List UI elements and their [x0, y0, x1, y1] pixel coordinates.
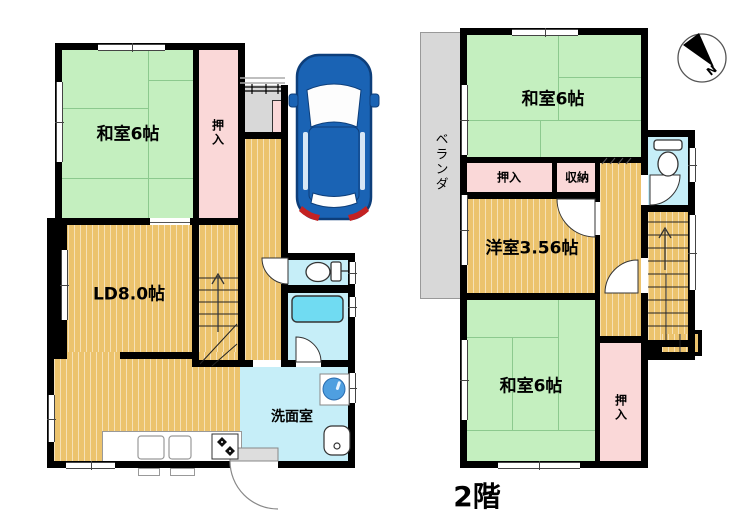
- porch-step-lines: [240, 78, 285, 83]
- floor-plan-canvas: N 和室6帖 押入 LD8.0帖 洗面室 和室6帖 押入 収納 洋室3.56帖 …: [0, 0, 730, 526]
- room-label-ld: LD8.0帖: [93, 280, 165, 305]
- room-label-washitsu-2f-north: 和室6帖: [522, 85, 585, 110]
- floor2-title: 2階: [453, 475, 500, 515]
- kitchen-sink-icon: [138, 436, 191, 459]
- washing-machine-icon: [320, 374, 349, 405]
- door-arc-bath-1f: [296, 337, 321, 362]
- door-arc-youshitsu-2f: [557, 199, 595, 237]
- north-compass: N: [678, 33, 726, 82]
- room-label-senmenshitsu: 洗面室: [271, 406, 313, 426]
- room-label-washitsu-2f-south: 和室6帖: [500, 372, 563, 397]
- sink-icon-washroom: [324, 426, 350, 455]
- fixture-overlay: N: [0, 0, 730, 526]
- toilet-icon-2f: [654, 140, 682, 176]
- staircase-2f-treads: [648, 222, 688, 352]
- room-label-oshiire-2f-south: 押入: [613, 394, 630, 422]
- room-label-oshiire-2f-north: 押入: [497, 169, 521, 186]
- bathtub-icon: [292, 296, 343, 322]
- stove-icon: [212, 434, 238, 459]
- room-label-shuunou: 収納: [565, 169, 589, 186]
- stairs-up-arrow-1f: [212, 274, 224, 332]
- door-arc-toilet-2f: [650, 175, 680, 205]
- door-arc-hallway-2f: [605, 260, 638, 293]
- stairs-up-arrow-2f: [659, 228, 671, 270]
- entry-sliding-door: [240, 84, 285, 94]
- veranda-label: ベランダ: [431, 132, 450, 192]
- door-arc-toilet-1f: [262, 258, 288, 284]
- toilet-icon-1f: [306, 262, 348, 282]
- room-label-oshiire-1f: 押入: [210, 119, 227, 147]
- car-top-view: [289, 55, 379, 221]
- hatch-marks: [602, 158, 631, 164]
- room-label-youshitsu: 洋室3.56帖: [486, 234, 579, 259]
- room-label-washitsu-1f: 和室6帖: [97, 120, 160, 145]
